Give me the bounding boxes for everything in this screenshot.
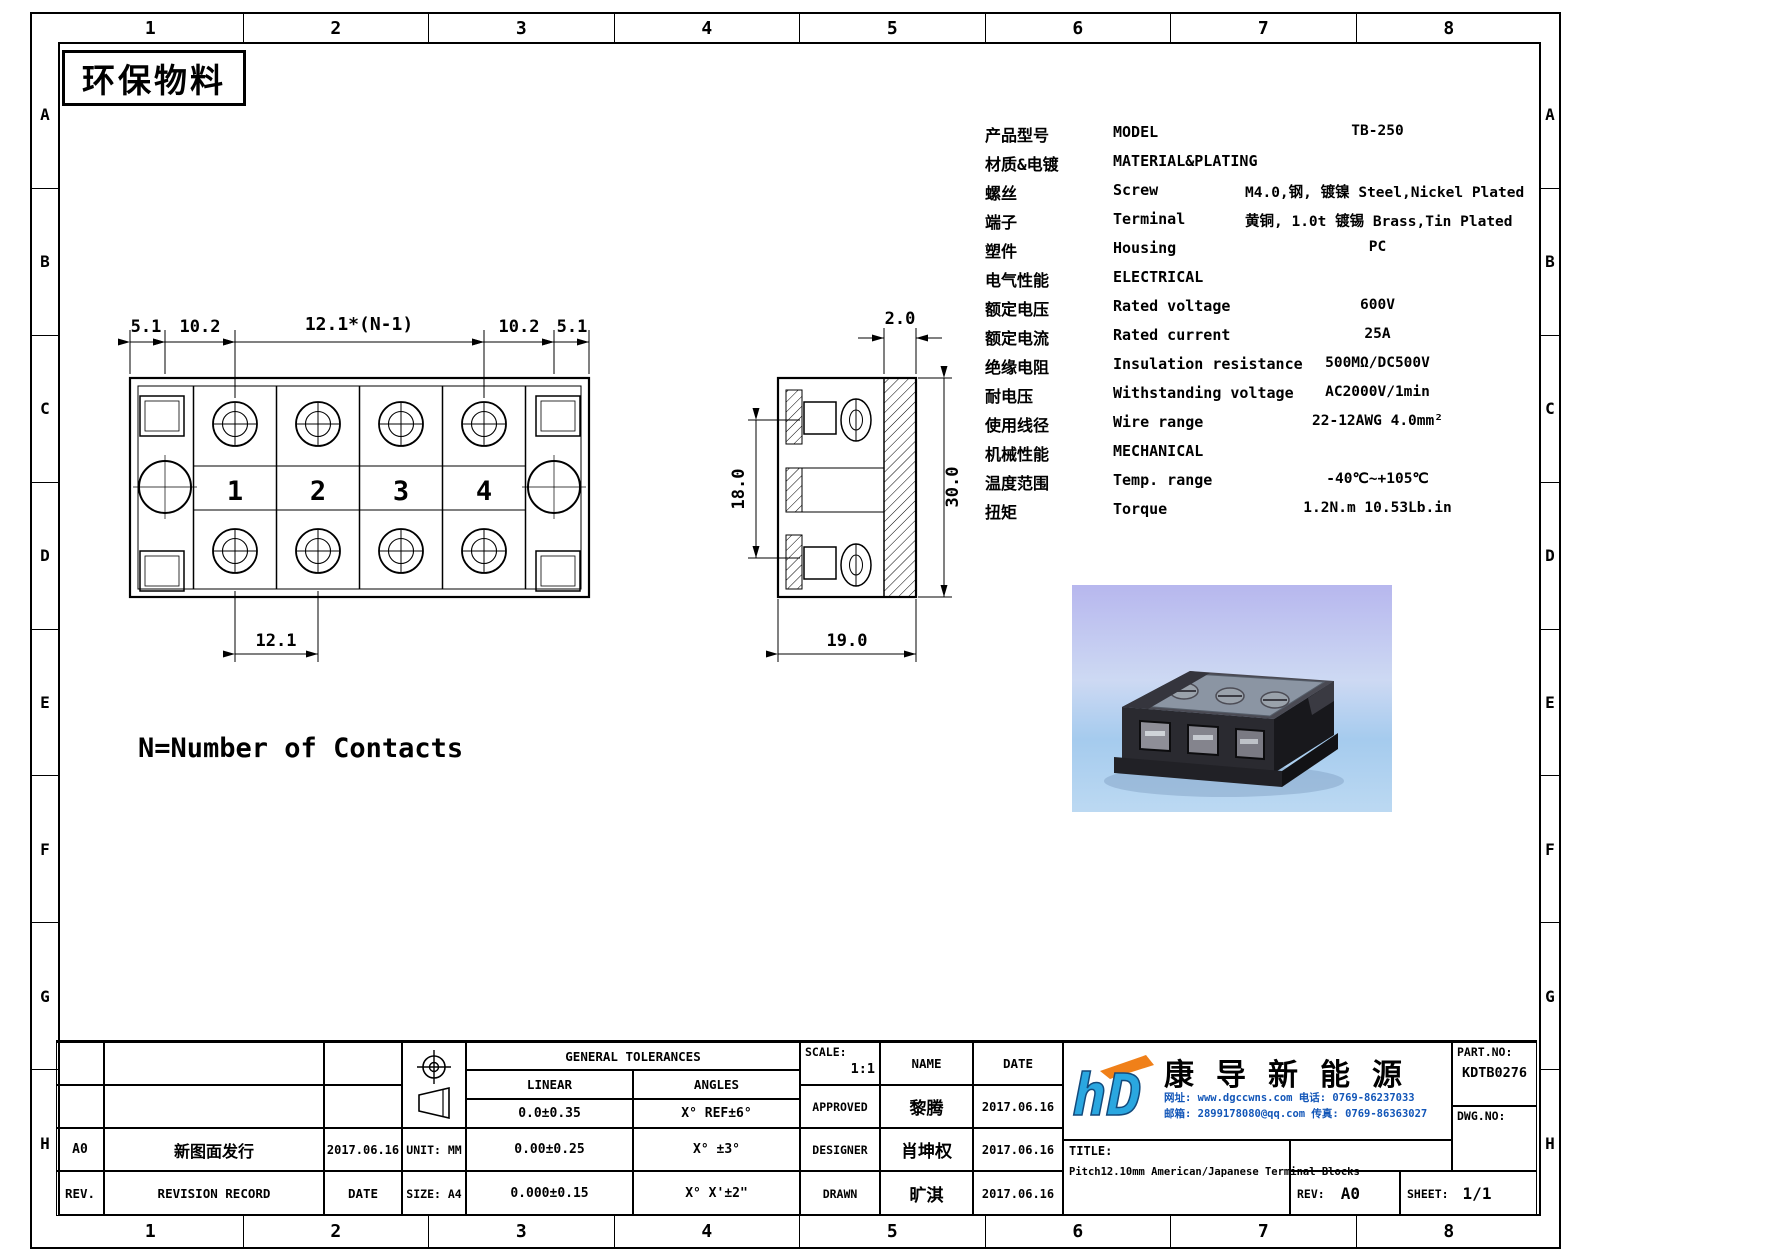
tolerance-linear-1: 0.0±0.35 [466, 1099, 633, 1128]
scale-label: SCALE: [805, 1045, 847, 1059]
third-angle-projection-icon [405, 1047, 463, 1123]
dwg-no-label: DWG.NO: [1457, 1109, 1505, 1123]
rev-field-label: REV: [1297, 1187, 1325, 1201]
spec-value: AC2000V/1min [1245, 384, 1510, 400]
zone-label: D [32, 483, 58, 630]
rev-empty-cell [56, 1042, 104, 1085]
spec-en: ELECTRICAL [1113, 268, 1203, 286]
zone-label: G [1541, 923, 1559, 1070]
contacts-note: N=Number of Contacts [138, 733, 463, 764]
tolerance-angles-2: X° ±3° [633, 1128, 800, 1171]
spec-value: 黄铜, 1.0t 镀锡 Brass,Tin Plated [1245, 210, 1510, 231]
drawn-name: 旷淇 [880, 1171, 973, 1216]
dim-label: 30.0 [943, 467, 963, 508]
zone-label: 4 [615, 1216, 801, 1247]
tolerance-linear-2: 0.00±0.25 [466, 1128, 633, 1171]
spec-row: 产品型号MODELTB-250 [985, 118, 1510, 147]
designer-date: 2017.06.16 [973, 1128, 1063, 1171]
spec-row: 使用线径Wire range22-12AWG 4.0mm² [985, 408, 1510, 437]
zone-label: B [32, 189, 58, 336]
drawing-sheet: 1 2 3 4 5 6 7 8 1 2 3 4 5 6 7 8 A B C D … [0, 0, 1778, 1257]
rev-field-value: A0 [1341, 1184, 1360, 1203]
spec-row: 额定电流Rated current25A [985, 321, 1510, 350]
zone-label: 7 [1171, 14, 1357, 42]
pole-number: 1 [227, 476, 243, 507]
zone-label: 8 [1357, 1216, 1542, 1247]
rev-empty-cell [56, 1085, 104, 1128]
zone-label: 4 [615, 14, 801, 42]
mounting-ear-left [133, 396, 197, 591]
orthographic-views: 1 2 3 4 5.1 10.2 12.1*(N-1) 10.2 5.1 12.… [56, 42, 1056, 872]
title-cell: TITLE: Pitch12.10mm American/Japanese Te… [1063, 1140, 1290, 1216]
zone-label: 6 [986, 14, 1172, 42]
spec-en: Wire range [1113, 413, 1203, 431]
zone-label: 6 [986, 1216, 1172, 1247]
spec-value: 500MΩ/DC500V [1245, 355, 1510, 371]
zone-label: G [32, 923, 58, 1070]
dim-label: 18.0 [729, 469, 749, 510]
spec-row: 耐电压Withstanding voltageAC2000V/1min [985, 379, 1510, 408]
spec-table: 产品型号MODELTB-250 材质&电镀MATERIAL&PLATING 螺丝… [985, 118, 1510, 524]
sheet-cell: SHEET: 1/1 [1400, 1171, 1537, 1216]
spec-value: 1.2N.m 10.53Lb.in [1245, 500, 1510, 516]
spec-value: TB-250 [1245, 123, 1510, 139]
spec-en: Rated current [1113, 326, 1230, 344]
tolerance-linear-label: LINEAR [466, 1070, 633, 1099]
unit-cell: UNIT: MM [402, 1128, 466, 1171]
zone-label: H [1541, 1070, 1559, 1216]
revision-record-label: REVISION RECORD [104, 1171, 324, 1216]
dwg-no-cell: DWG.NO: [1452, 1106, 1537, 1171]
spec-en: MATERIAL&PLATING [1113, 152, 1258, 170]
tolerance-linear-3: 0.000±0.15 [466, 1171, 633, 1216]
part-no-value: KDTB0276 [1462, 1065, 1527, 1081]
dim-label: 2.0 [885, 309, 916, 329]
spec-row: 扭矩Torque1.2N.m 10.53Lb.in [985, 495, 1510, 524]
zone-label: A [32, 42, 58, 189]
company-name: 康导新能源 [1164, 1060, 1427, 1092]
spec-value: 600V [1245, 297, 1510, 313]
product-photo [1072, 585, 1392, 812]
title-label: TITLE: [1069, 1144, 1284, 1158]
spec-row: 塑件HousingPC [985, 234, 1510, 263]
zone-label: E [32, 630, 58, 777]
spec-en: Rated voltage [1113, 297, 1230, 315]
drawn-label: DRAWN [800, 1171, 880, 1216]
zone-label: C [32, 336, 58, 483]
company-contact-line2: 邮箱: 2899178080@qq.com 传真: 0769-86363027 [1164, 1107, 1427, 1123]
zone-label: 7 [1171, 1216, 1357, 1247]
spec-en: Temp. range [1113, 471, 1212, 489]
spec-row: 绝缘电阻Insulation resistance500MΩ/DC500V [985, 350, 1510, 379]
rev-value: A0 [56, 1128, 104, 1171]
date-header: DATE [973, 1042, 1063, 1085]
zone-label: 1 [58, 1216, 244, 1247]
spec-row: 温度范围Temp. range-40℃~+105℃ [985, 466, 1510, 495]
tolerance-angles-1: X° REF±6° [633, 1099, 800, 1128]
part-no-cell: PART.NO: KDTB0276 [1452, 1042, 1537, 1106]
company-contact-line1: 网址: www.dgccwns.com 电话: 0769-86237033 [1164, 1091, 1427, 1107]
spec-value: 25A [1245, 326, 1510, 342]
approved-label: APPROVED [800, 1085, 880, 1128]
title-block: A0 新图面发行 2017.06.16 REV. REVISION RECORD… [56, 1040, 1537, 1216]
sheet-field-label: SHEET: [1407, 1187, 1449, 1201]
zone-rows-right: A B C D E F G H [1541, 42, 1559, 1216]
spec-row: 材质&电镀MATERIAL&PLATING [985, 147, 1510, 176]
spec-row: 端子Terminal黄铜, 1.0t 镀锡 Brass,Tin Plated [985, 205, 1510, 234]
drawing-title: Pitch12.10mm American/Japanese Terminal … [1069, 1166, 1284, 1178]
part-no-label: PART.NO: [1457, 1045, 1512, 1059]
spec-value: 22-12AWG 4.0mm² [1245, 413, 1510, 429]
drawn-date: 2017.06.16 [973, 1171, 1063, 1216]
zone-label: 1 [58, 14, 244, 42]
spec-row: 螺丝ScrewM4.0,钢, 镀镍 Steel,Nickel Plated [985, 176, 1510, 205]
section-pocket-top [786, 390, 871, 444]
spec-en: MECHANICAL [1113, 442, 1203, 460]
dim-label: 12.1 [256, 631, 297, 651]
spec-row: 额定电压Rated voltage600V [985, 292, 1510, 321]
spec-value: M4.0,钢, 镀镍 Steel,Nickel Plated [1245, 181, 1510, 202]
zone-label: 5 [800, 14, 986, 42]
projection-cell [402, 1042, 466, 1128]
zone-columns-top: 1 2 3 4 5 6 7 8 [58, 14, 1541, 42]
zone-label: F [1541, 776, 1559, 923]
designer-name: 肖坤权 [880, 1128, 973, 1171]
zone-columns-bottom: 1 2 3 4 5 6 7 8 [58, 1216, 1541, 1247]
company-cell: hD 康导新能源 网址: www.dgccwns.com 电话: 0769-86… [1063, 1042, 1452, 1140]
rev-empty-cell [104, 1042, 324, 1085]
zone-label: 3 [429, 1216, 615, 1247]
scale-value: 1:1 [851, 1061, 875, 1077]
approved-date: 2017.06.16 [973, 1085, 1063, 1128]
spec-en: Torque [1113, 500, 1167, 518]
sheet-field-value: 1/1 [1463, 1184, 1492, 1203]
dim-label: 10.2 [180, 317, 221, 337]
rev-empty-cell [324, 1042, 402, 1085]
dim-label: 19.0 [827, 631, 868, 651]
spec-value: PC [1245, 239, 1510, 255]
zone-label: 2 [244, 1216, 430, 1247]
company-logo-icon: hD [1070, 1049, 1156, 1133]
name-header: NAME [880, 1042, 973, 1085]
approved-name: 黎腾 [880, 1085, 973, 1128]
zone-rows-left: A B C D E F G H [32, 42, 58, 1216]
tolerance-header: GENERAL TOLERANCES [466, 1042, 800, 1070]
rev-cell: REV: A0 [1290, 1171, 1400, 1216]
tolerance-angles-3: X° X'±2" [633, 1171, 800, 1216]
tolerance-angles-label: ANGLES [633, 1070, 800, 1099]
dim-label: 5.1 [131, 317, 162, 337]
zone-label: 5 [800, 1216, 986, 1247]
rev-label: REV. [56, 1171, 104, 1216]
zone-label: 2 [244, 14, 430, 42]
designer-label: DESIGNER [800, 1128, 880, 1171]
pole-number: 2 [310, 476, 326, 507]
zone-label: E [1541, 630, 1559, 777]
dim-label: 10.2 [499, 317, 540, 337]
dim-label: 12.1*(N-1) [305, 314, 413, 335]
rev-date-value: 2017.06.16 [324, 1128, 402, 1171]
spec-row: 电气性能ELECTRICAL [985, 263, 1510, 292]
rev-empty-cell [104, 1085, 324, 1128]
zone-label: F [32, 776, 58, 923]
spec-en: Housing [1113, 239, 1176, 257]
spec-en: Terminal [1113, 210, 1185, 228]
terminal-block-render [1072, 585, 1392, 812]
zone-label: H [32, 1070, 58, 1216]
zone-label: A [1541, 42, 1559, 189]
spec-row: 机械性能MECHANICAL [985, 437, 1510, 466]
section-pocket-bottom [786, 535, 871, 589]
mounting-ear-right [522, 396, 586, 591]
dim-label: 5.1 [557, 317, 588, 337]
pole-number: 4 [476, 476, 492, 507]
svg-text:hD: hD [1072, 1061, 1142, 1129]
top-view [130, 378, 589, 597]
zone-label: 3 [429, 14, 615, 42]
zone-label: B [1541, 189, 1559, 336]
section-view [778, 378, 916, 597]
spec-en: Screw [1113, 181, 1158, 199]
scale-cell: SCALE: 1:1 [800, 1042, 880, 1085]
size-cell: SIZE: A4 [402, 1171, 466, 1216]
zone-label: C [1541, 336, 1559, 483]
spec-value: -40℃~+105℃ [1245, 471, 1510, 487]
zone-label: 8 [1357, 14, 1542, 42]
spec-en: MODEL [1113, 123, 1158, 141]
rev-record-value: 新图面发行 [104, 1128, 324, 1171]
pole-number: 3 [393, 476, 409, 507]
rev-empty-cell [324, 1085, 402, 1128]
spare-cell [1290, 1140, 1452, 1171]
zone-label: D [1541, 483, 1559, 630]
rev-date-label: DATE [324, 1171, 402, 1216]
